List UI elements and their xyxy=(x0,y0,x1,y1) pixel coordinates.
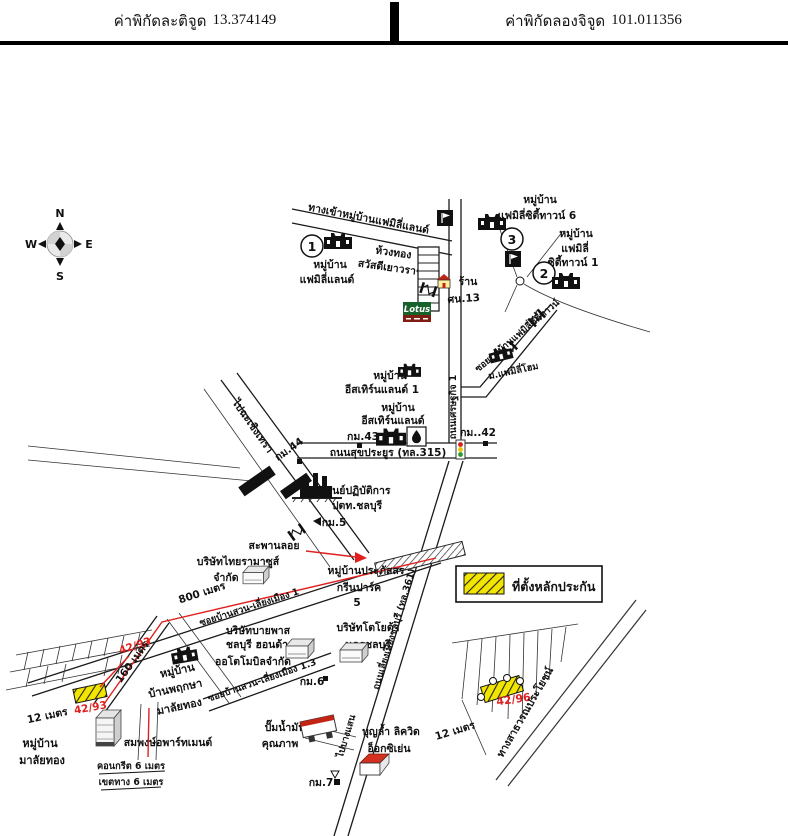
point-2-number: 2 xyxy=(540,266,549,281)
km44-marker-icon xyxy=(297,459,302,464)
map-document-page: ค่าพิกัดละติจูด 13.374149 ค่าพิกัดลองจิจ… xyxy=(0,0,788,836)
overpass-arrowhead xyxy=(355,552,367,563)
village-icon xyxy=(398,364,421,377)
label-gas-2: คุณภาพ xyxy=(262,738,299,751)
label-sompong: สมพงษ์อพาร์ทเมนต์ xyxy=(124,736,213,749)
label-family-land-1: หมู่บ้าน xyxy=(313,258,347,272)
compass-e: E xyxy=(85,238,93,251)
label-concrete6: คอนกรีต 6 เมตร xyxy=(97,760,165,772)
km6-marker-icon xyxy=(323,676,328,681)
label-km5: กม.5 xyxy=(322,517,347,529)
label-12m-right: 12 เมตร xyxy=(434,719,477,743)
compass-rose: N S E W xyxy=(25,207,93,283)
label-gas-1: ปั๊มน้ำมัน xyxy=(265,719,307,734)
label-family-city6-2: แฟมิลี่ซิตี้ทาวน์ 6 xyxy=(498,207,576,222)
compass-n: N xyxy=(55,207,64,220)
point-1-marker: 1 xyxy=(301,235,323,257)
label-km43: กม.43 xyxy=(347,431,379,443)
compass-s: S xyxy=(56,270,64,283)
label-malai-thong-1: หมู่บ้าน xyxy=(22,737,58,751)
lotus-text: Lotus xyxy=(404,305,430,315)
label-shop: ร้าน xyxy=(459,275,479,288)
label-thai-ramasus-2: จำกัด xyxy=(213,572,238,584)
railway-bar-icon xyxy=(238,466,275,497)
label-soi-family-city: ซอยหมู่บ้านแฟมิลี่ซิตี้ทาวน์ xyxy=(471,295,562,375)
point-1-number: 1 xyxy=(308,239,317,254)
label-pruksa-3: มาลัยทอง xyxy=(155,695,203,717)
label-entrance-road: ทางเข้าหมู่บ้านแฟมิลี่แลนด์ xyxy=(307,198,431,237)
label-setthakit-road: ถนนเศรษฐกิจ 1 xyxy=(448,375,459,439)
label-boonlam-2: อ็อกซิเย่น xyxy=(367,741,411,755)
km42-marker-icon xyxy=(483,441,488,446)
label-eastern-land-1: หมู่บ้าน xyxy=(381,401,415,415)
label-ptt-2: ปตท.ชลบุรี xyxy=(332,499,383,513)
ladder-bridge-icon xyxy=(418,247,439,311)
label-sawasdee-yaowarat: สวัสดีเยาวราช xyxy=(357,257,424,279)
traffic-light-icon xyxy=(456,440,465,459)
label-family-city1-1: หมู่บ้าน xyxy=(559,227,593,241)
label-family-city1-2: แฟมิลี่ xyxy=(561,240,589,255)
map-canvas: N S E W ทางเข้าหมู่บ้านแฟมิลี่แล xyxy=(0,0,788,836)
inset-parcel-fan xyxy=(452,600,646,786)
village-gate-icon xyxy=(376,429,406,446)
label-eastern-land1-2: อีสเทิร์นแลนด์ 1 xyxy=(344,383,419,396)
km7-marker-icon xyxy=(334,779,340,785)
school-icon xyxy=(437,210,453,226)
fuel-station-icon xyxy=(407,427,426,446)
gas-station-icon xyxy=(300,715,338,744)
label-sukprayoon-road: ถนนสุขประยูร (ทล.315) xyxy=(330,447,447,460)
label-roadway6: เขตทาง 6 เมตร xyxy=(99,777,164,788)
boundary-peg xyxy=(490,678,497,685)
label-toyota-1: บริษัทโตโยต้า xyxy=(336,621,399,634)
point-3-marker: 3 xyxy=(501,228,523,250)
junction-circle xyxy=(516,277,524,285)
km5-marker-icon xyxy=(313,517,321,526)
label-km7: กม.7 xyxy=(309,777,334,789)
point-3-number: 3 xyxy=(508,232,517,247)
label-12m-left: 12 เมตร xyxy=(26,706,69,726)
building-3d-icon xyxy=(340,643,368,662)
label-prapatsorn-1: หมู่บ้านประภัสสร xyxy=(328,564,405,578)
label-prapatsorn-2: กรีนปาร์ค xyxy=(337,581,381,594)
point-2-marker: 2 xyxy=(533,262,555,284)
concrete-road-red-line xyxy=(148,708,149,757)
compass-w: W xyxy=(25,238,37,251)
label-ptt-1: ศูนย์ปฏิบัติการ xyxy=(325,484,390,498)
apartment-3d-icon xyxy=(96,710,121,746)
boonlam-building-icon xyxy=(360,754,389,775)
boundary-peg xyxy=(478,694,485,701)
label-honda-3: ออโตโมบิลจำกัด xyxy=(215,655,291,668)
label-eastern-land-2: อีสเทิร์นแลนด์ xyxy=(361,414,425,427)
village-icon xyxy=(324,233,352,249)
label-shop-no: ศน.13 xyxy=(447,292,480,306)
label-km6: กม.6 xyxy=(300,676,325,688)
building-3d-icon xyxy=(286,639,314,658)
label-to-chachoengsao: ไปฉะเชิงเทรา xyxy=(229,396,276,456)
label-prapatsorn-3: 5 xyxy=(353,597,360,609)
label-malai-thong-2: มาลัยทอง xyxy=(19,754,65,767)
label-family-city1-3: ซิตี้ทาวน์ 1 xyxy=(548,254,599,269)
legend-swatch xyxy=(464,573,504,594)
label-km42: กม..42 xyxy=(460,427,496,439)
boundary-peg xyxy=(517,678,524,685)
boundary-peg xyxy=(504,675,511,682)
building-3d-icon xyxy=(243,566,269,584)
legend-box: ที่ตั้งหลักประกัน xyxy=(456,566,602,602)
label-family-city6-1: หมู่บ้าน xyxy=(523,193,557,207)
school-icon xyxy=(505,251,521,267)
label-honda-2: ชลบุรี ฮอนด้า xyxy=(226,638,288,652)
label-overpass: สะพานลอย xyxy=(249,540,300,552)
label-honda-1: บริษัทบายพาส xyxy=(226,625,291,637)
label-family-land-2: แฟมิลี่แลนด์ xyxy=(300,271,355,286)
lotus-sign: Lotus xyxy=(403,302,431,322)
village-icon xyxy=(552,273,580,289)
road-break-icon xyxy=(288,524,305,540)
label-boonlam-1: บุญล้ำ ลิควิด xyxy=(362,723,420,739)
legend-text: ที่ตั้งหลักประกัน xyxy=(512,577,596,594)
